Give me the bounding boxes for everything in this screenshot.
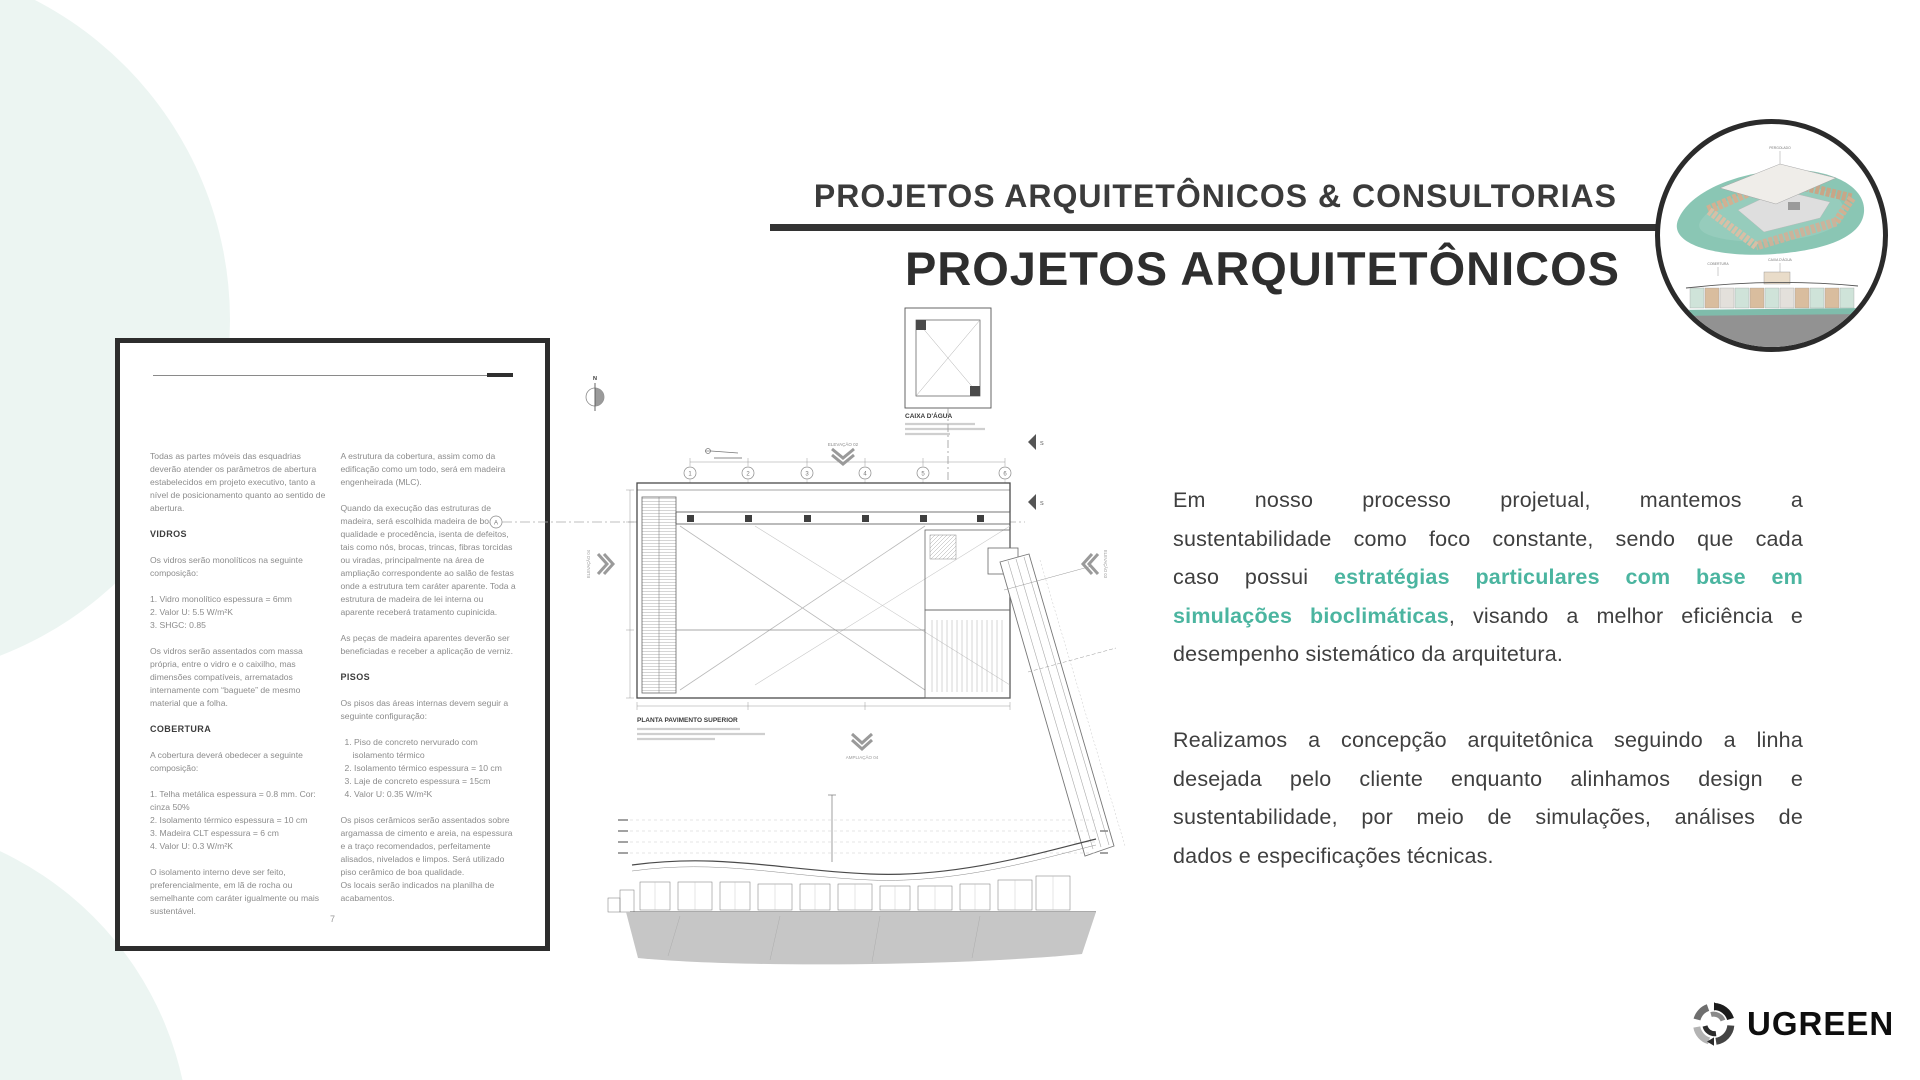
body-line: caso possui estratégias particulares com… [1173, 558, 1803, 597]
body-line: sustentabilidade, por meio de simulações… [1173, 798, 1803, 837]
body-line: Realizamos a concepção arquitetônica seg… [1173, 721, 1803, 760]
svg-text:S: S [1040, 501, 1044, 507]
paragraph-1: Em nosso processo projetual, mantemos as… [1173, 481, 1803, 674]
doc-list: 1. Telha metálica espessura = 0.8 mm. Co… [150, 788, 328, 853]
doc-list: 1. Vidro monolítico espessura = 6mm2. Va… [150, 593, 328, 632]
slide: PROJETOS ARQUITETÔNICOS & CONSULTORIAS P… [0, 0, 1920, 1080]
body-line: Em nosso processo projetual, mantemos a [1173, 481, 1803, 520]
badge-label-caixa: CAIXA D'ÁGUA [1768, 258, 1792, 262]
architecture-badge-image: PERGOLADO COBERTURA CAIXA D'ÁGUA [1655, 119, 1888, 352]
plan-title-block: PLANTA PAVIMENTO SUPERIOR [637, 717, 765, 739]
paragraph-2: Realizamos a concepção arquitetônica seg… [1173, 721, 1803, 875]
doc-column-left: Todas as partes móveis das esquadrias de… [150, 450, 328, 931]
document-top-rule [153, 375, 513, 376]
body-line: sustentabilidade como foco constante, se… [1173, 520, 1803, 559]
north-arrow-icon: N [586, 376, 604, 411]
header-divider-bar [770, 224, 1660, 231]
ugreen-logo-text: UGREEN [1747, 1005, 1894, 1043]
body-line: desempenho sistemático da arquitetura. [1173, 635, 1803, 674]
plan-outline [637, 483, 1010, 698]
elevation-03-marker: ELEVAÇÃO 03 [1083, 550, 1108, 579]
ampliacao-marker: AMPLIAÇÃO 04 [846, 734, 879, 760]
doc-paragraph: O isolamento interno deve ser feito, pre… [150, 866, 328, 918]
body-line: dados e especificações técnicas. [1173, 837, 1803, 876]
north-label: N [593, 376, 597, 382]
svg-text:A: A [494, 521, 498, 527]
doc-paragraph: Os vidros serão monolíticos na seguinte … [150, 554, 328, 580]
water-tank-label: CAIXA D'ÁGUA [905, 411, 952, 420]
section-cut-markers: S S [1028, 434, 1044, 510]
svg-text:AMPLIAÇÃO 04: AMPLIAÇÃO 04 [846, 754, 879, 760]
elevation-04-marker: ELEVAÇÃO 04 [586, 549, 613, 578]
svg-text:ELEVAÇÃO 02: ELEVAÇÃO 02 [828, 441, 859, 447]
badge-label-pergolado: PERGOLADO [1769, 146, 1791, 150]
elevation-02-marker: ELEVAÇÃO 02 [828, 441, 859, 464]
doc-paragraph: Os vidros serão assentados com massa pró… [150, 645, 328, 710]
elevation-drawing [608, 795, 1108, 964]
ugreen-logo: UGREEN [1690, 1000, 1894, 1048]
svg-text:S: S [1040, 441, 1044, 447]
floor-plan-drawing: N ELEVAÇÃO 02 [480, 290, 1135, 990]
doc-paragraph: Todas as partes móveis das esquadrias de… [150, 450, 328, 515]
page-title: PROJETOS ARQUITETÔNICOS [905, 246, 1620, 292]
body-copy: Em nosso processo projetual, mantemos as… [1173, 481, 1803, 875]
axonometric-illustration: PERGOLADO COBERTURA CAIXA D'ÁGUA [1660, 124, 1883, 347]
doc-paragraph: A cobertura deverá obedecer a seguinte c… [150, 749, 328, 775]
svg-text:ELEVAÇÃO 04: ELEVAÇÃO 04 [586, 549, 591, 578]
body-line: desejada pelo cliente enquanto alinhamos… [1173, 760, 1803, 799]
plan-title: PLANTA PAVIMENTO SUPERIOR [637, 717, 738, 724]
section-eyebrow: PROJETOS ARQUITETÔNICOS & CONSULTORIAS [814, 180, 1617, 212]
doc-heading: VIDROS [150, 528, 328, 541]
body-line: simulações bioclimáticas, visando a melh… [1173, 597, 1803, 636]
doc-heading: COBERTURA [150, 723, 328, 736]
badge-label-cobertura: COBERTURA [1707, 262, 1729, 266]
ugreen-circular-arrows-icon [1690, 1000, 1738, 1048]
svg-text:ELEVAÇÃO 03: ELEVAÇÃO 03 [1103, 550, 1108, 579]
